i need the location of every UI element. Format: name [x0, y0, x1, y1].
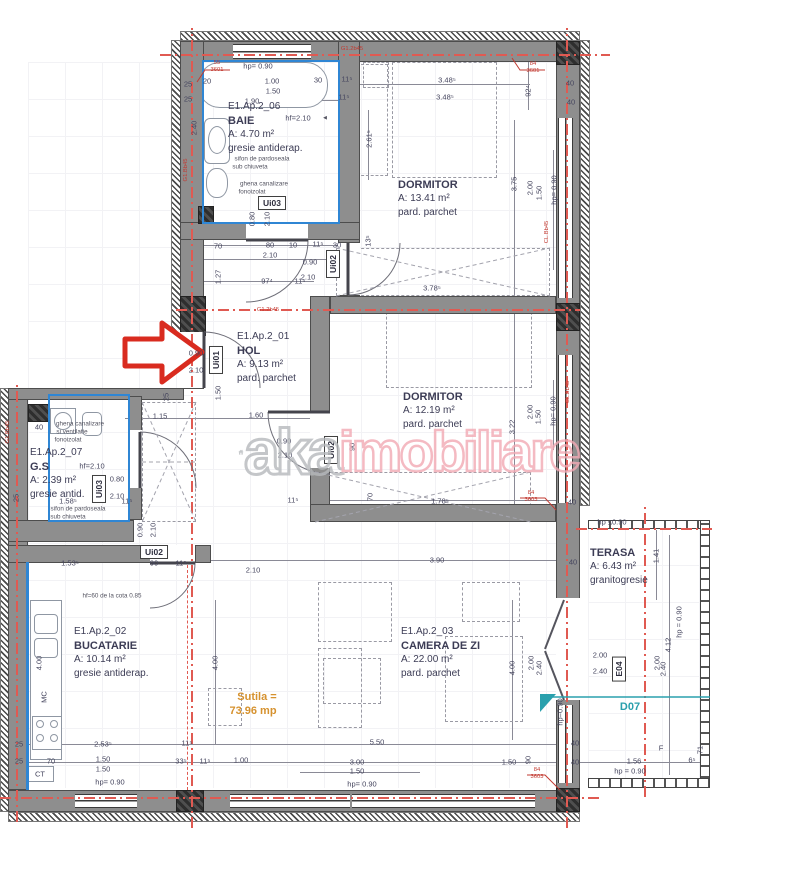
dim-label: 4.00: [35, 656, 44, 671]
dim-label: 3603: [531, 774, 544, 780]
dim-label: 3601: [527, 68, 540, 74]
dim-label: 2.40: [535, 661, 544, 676]
dim-label: 1.50: [96, 755, 111, 764]
door-tag: Ui03: [258, 196, 286, 210]
dim-label: 1.78⁵: [431, 497, 449, 506]
room-area: A: 13.41 m²: [398, 192, 458, 206]
dim-label: 97⁴: [261, 277, 273, 286]
dim-label: 71: [696, 746, 705, 754]
door-tag: Ui02: [326, 250, 340, 278]
dim-label: 84: [530, 61, 536, 67]
dim-label: 1.50: [96, 765, 111, 774]
room-label-baie: E1.Ap.2_06 BAIE A: 4.70 m² gresie antide…: [228, 100, 303, 156]
wall: [195, 545, 211, 563]
dim-label: hp ≤0.90: [597, 518, 626, 527]
dim-label: 1.58⁵: [59, 497, 77, 506]
dim-label: 55: [214, 60, 220, 66]
wall-hatch: [180, 31, 580, 41]
dim-label: G1.Bb45: [183, 159, 189, 182]
dim-label: 84: [534, 767, 540, 773]
dim-label: 3.48⁵: [438, 76, 456, 85]
column: [176, 790, 204, 812]
dim-label: 0.80: [110, 475, 125, 484]
room-label-gs: E1.Ap.2_07 G.S A: 2.39 m² gresie antid.: [30, 446, 84, 502]
dim-label: 3.22: [508, 420, 517, 435]
dim-label: 1.41: [652, 549, 661, 564]
dim-label: 3.00: [350, 758, 365, 767]
axis-line: [176, 309, 580, 311]
dim-label: 40: [571, 739, 579, 748]
dim-label: fonoizolat: [239, 189, 266, 196]
room-label-bucatarie: E1.Ap.2_02 BUCATARIE A: 10.14 m² gresie …: [74, 625, 149, 681]
dim-label: hp= 0.90: [243, 62, 272, 71]
dim-label: si ventilatie: [56, 429, 87, 436]
room-label-dormitor1: DORMITOR A: 13.41 m² pard. parchet: [398, 178, 458, 220]
dim-label: 2.10: [263, 251, 278, 260]
dim-label: 4.00: [211, 656, 220, 671]
dim-label: hp= 0.90: [95, 778, 124, 787]
room-code: E1.Ap.2_03: [401, 625, 480, 639]
dim-label: 3603: [525, 497, 538, 503]
dim-label: 2.00: [526, 181, 535, 196]
dim-label: 0.90: [136, 523, 145, 538]
dim-label: CL.Bb45: [544, 221, 550, 244]
room-area: A: 12.19 m²: [403, 404, 463, 418]
room-code: E1.Ap.2_02: [74, 625, 149, 639]
dim-line: [656, 530, 657, 600]
waterproof-line-kitchen: [26, 562, 29, 790]
dim-label: sifon de pardoseala: [235, 156, 290, 163]
dim-label: 0.90: [189, 349, 204, 358]
dim-label: 1.00: [234, 756, 249, 765]
dim-label: 25: [184, 95, 192, 104]
dim-label: hp = 0.90: [675, 606, 684, 638]
dim-label: hp=0.90: [556, 698, 565, 725]
dim-label: G1.Bb45: [5, 421, 11, 444]
room-area: A: 6.43 m²: [590, 560, 648, 574]
dim-label: 25: [184, 80, 192, 89]
shaft-box: [28, 404, 50, 422]
dim-label: 3601: [211, 67, 224, 73]
dim-label: 20: [203, 77, 211, 86]
dim-label: 90: [348, 443, 357, 451]
dim-label: 80: [266, 241, 274, 250]
dim-label: 1.50: [266, 87, 281, 96]
dim-label: hp= 0.90: [549, 396, 558, 425]
wall: [330, 296, 556, 314]
dim-label: 11⁵: [339, 93, 350, 102]
dim-label: 1.60: [249, 411, 264, 420]
zone-boundary: [187, 565, 188, 790]
dim-label: 1.50: [350, 767, 365, 776]
hall-closet-outline: [142, 402, 196, 522]
room-area: A: 10.14 m²: [74, 653, 149, 667]
floor-plan: E1.Ap.2_06 BAIE A: 4.70 m² gresie antide…: [0, 0, 800, 883]
dim-label: 2.10: [263, 212, 272, 227]
axis-line: [566, 28, 568, 828]
column: [180, 296, 206, 336]
dim-label: 25: [15, 757, 23, 766]
column: [556, 303, 580, 331]
terrace-railing: [588, 778, 710, 788]
dim-label: 4.00: [508, 661, 517, 676]
dim-label: 2.00: [593, 651, 608, 660]
room-code: E1.Ap.2_06: [228, 100, 303, 114]
dim-label: CT: [35, 770, 45, 779]
dim-label: 1.50: [534, 410, 543, 425]
dim-label: hp= 0.90: [347, 780, 376, 789]
room-area: A: 22.00 m²: [401, 653, 480, 667]
column: [556, 788, 580, 812]
wall: [8, 520, 134, 542]
dim-label: sub chiuveta: [232, 164, 267, 171]
room-name: TERASA: [590, 546, 648, 560]
dim-label: 92⁴: [524, 85, 533, 97]
furniture-outline: [323, 658, 381, 704]
wall: [338, 41, 360, 243]
wall-hatch: [580, 40, 590, 506]
dim-label: 11⁵: [342, 75, 353, 84]
room-floor: pard. parchet: [237, 372, 296, 386]
room-label-camera-de-zi: E1.Ap.2_03 CAMERA DE ZI A: 22.00 m² pard…: [401, 625, 480, 681]
dim-label: 1.50: [535, 186, 544, 201]
wall: [8, 545, 152, 563]
dim-label: D07: [620, 701, 640, 713]
dim-label: 2.40: [190, 121, 199, 136]
door-tag: Ui02: [324, 436, 338, 464]
dim-label: 2.40: [593, 667, 608, 676]
room-name: CAMERA DE ZI: [401, 639, 480, 653]
room-label-dormitor2: DORMITOR A: 12.19 m² pard. parchet: [403, 390, 463, 432]
room-area: A: 2.39 m²: [30, 474, 84, 488]
dim-label: 3.48⁵: [436, 93, 454, 102]
dim-label: 73.96 mp: [229, 705, 276, 717]
dim-label: 11⁵: [122, 497, 133, 506]
dim-label: hp= 0.90: [550, 175, 559, 204]
room-floor: gresie antiderap.: [74, 667, 149, 681]
sofa-outline: [318, 582, 392, 642]
door-tag: Ui01: [209, 346, 223, 374]
dim-label: 40: [568, 498, 576, 507]
dim-label: 25: [15, 740, 23, 749]
dim-label: MC: [40, 691, 49, 703]
room-area: A: 4.70 m²: [228, 128, 303, 142]
dim-label: 0.80: [248, 212, 257, 227]
dim-label: ghena canalizare: [240, 181, 288, 188]
burner: [36, 734, 44, 742]
wardrobe-outline: [336, 248, 550, 296]
door-opening: [128, 430, 142, 488]
dim-label: 40: [35, 423, 43, 432]
dim-label: 3.78⁵: [423, 284, 441, 293]
bed-outline: [386, 302, 532, 388]
dim-label: hf=2.10: [285, 114, 310, 123]
room-name: DORMITOR: [403, 390, 463, 404]
room-name: BUCATARIE: [74, 639, 149, 653]
dim-label: 6⁵: [688, 756, 695, 765]
dim-label: 4.12: [664, 638, 673, 653]
wall: [310, 296, 330, 522]
dim-label: 11⁵: [182, 739, 193, 748]
room-label-terasa: TERASA A: 6.43 m² granitogresie: [590, 546, 648, 588]
room-label-hol: E1.Ap.2_01 HOL A: 9.13 m² pard. parchet: [237, 330, 296, 386]
dim-label: 1.15: [153, 412, 168, 421]
dim-label: 2.10: [278, 451, 293, 460]
dim-label: G1.2b45: [257, 307, 279, 313]
room-area: A: 9.13 m²: [237, 358, 296, 372]
dim-label: ◄: [322, 115, 328, 122]
dim-label: 0.90: [277, 437, 292, 446]
dim-label: 70: [214, 242, 222, 251]
wall: [8, 388, 28, 790]
room-name: DORMITOR: [398, 178, 458, 192]
room-floor: granitogresie: [590, 574, 648, 588]
column: [556, 41, 580, 65]
dim-label: sub chiuveta: [50, 514, 85, 521]
dim-label: 30: [333, 241, 341, 250]
dim-label: 70: [366, 493, 375, 501]
dim-line: [204, 245, 348, 246]
axis-line: [191, 28, 193, 828]
dim-label: 25: [162, 393, 171, 401]
dim-label: 40: [571, 758, 579, 767]
burner: [36, 720, 44, 728]
dim-label: 3.90: [430, 556, 445, 565]
dim-label: 84: [528, 490, 534, 496]
dim-label: fonoizolat: [55, 437, 82, 444]
dim-label: 40: [569, 558, 577, 567]
dim-label: G1.2b45: [341, 46, 363, 52]
dim-label: 30: [314, 76, 322, 85]
dim-label: 70: [47, 757, 55, 766]
dim-label: CL.Bb45: [565, 381, 571, 404]
dim-label: 1.50: [214, 386, 223, 401]
dim-label: 1.50: [502, 758, 517, 767]
dim-label: 33⁵: [175, 757, 186, 766]
room-floor: pard. parchet: [401, 667, 480, 681]
dim-label: 10: [289, 241, 297, 250]
dim-label: sifon de pardoseala: [51, 506, 106, 513]
door-tag: Ui03: [92, 475, 106, 503]
room-code: E1.Ap.2_01: [237, 330, 296, 344]
dim-label: 0.90: [303, 258, 318, 267]
burner: [50, 734, 58, 742]
window: [233, 44, 311, 59]
wall-hatch: [8, 812, 580, 822]
dim-label: hp = 0.90: [614, 767, 646, 776]
dim-label: 2.10: [189, 366, 204, 375]
axis-line: [160, 54, 610, 56]
dim-label: 11⁵: [288, 496, 299, 505]
terrace-door-opening: [556, 598, 580, 700]
dim-label: 40: [567, 98, 575, 107]
dim-label: 25: [12, 494, 21, 502]
room-code: E1.Ap.2_07: [30, 446, 84, 460]
room-floor: gresie antiderap.: [228, 142, 303, 156]
door-opening: [338, 243, 360, 295]
dim-label: 11⁵: [176, 559, 187, 568]
dim-label: 1.56: [627, 757, 642, 766]
dim-line: [669, 535, 670, 775]
door-tag: E04: [612, 656, 626, 681]
room-floor: pard. parchet: [403, 418, 463, 432]
dim-label: 3.75: [510, 177, 519, 192]
dim-label: 5.50: [370, 738, 385, 747]
dim-label: F: [659, 744, 664, 753]
dim-label: 2.61⁵: [365, 130, 374, 148]
dim-label: 90: [150, 559, 158, 568]
wall: [310, 504, 556, 522]
dim-label: 13⁵: [364, 235, 373, 246]
room-floor: pard. parchet: [398, 206, 458, 220]
dim-label: hf=2.10: [79, 462, 104, 471]
dim-label: 11⁵: [313, 240, 324, 249]
dim-label: 2.53⁵: [94, 740, 112, 749]
dim-label: 11⁵: [295, 277, 306, 286]
dim-label: Sutila =: [237, 691, 276, 703]
axis-line: [0, 797, 600, 799]
dim-label: 2.10: [246, 566, 261, 575]
dim-label: 1.27: [214, 270, 223, 285]
room-name: HOL: [237, 344, 296, 358]
kitchen-sink-bowl: [34, 614, 58, 634]
dim-label: 11⁵: [200, 757, 211, 766]
dim-label: 90: [524, 756, 533, 764]
dim-label: 1.53⁵: [61, 559, 79, 568]
dim-label: 40: [566, 79, 574, 88]
dim-label: hf=60 de la cota 0.85: [83, 593, 142, 600]
dim-label: ghena canalizare: [56, 421, 104, 428]
room-name: G.S: [30, 460, 84, 474]
door-tag: Ui02: [140, 545, 168, 559]
furniture-outline: [462, 582, 520, 622]
dim-label: 1.90: [245, 97, 260, 106]
dim-line: [553, 150, 554, 270]
dim-label: 2.10: [149, 523, 158, 538]
burner: [50, 720, 58, 728]
dim-label: 1.00: [265, 77, 280, 86]
dim-label: 2.40: [659, 662, 668, 677]
